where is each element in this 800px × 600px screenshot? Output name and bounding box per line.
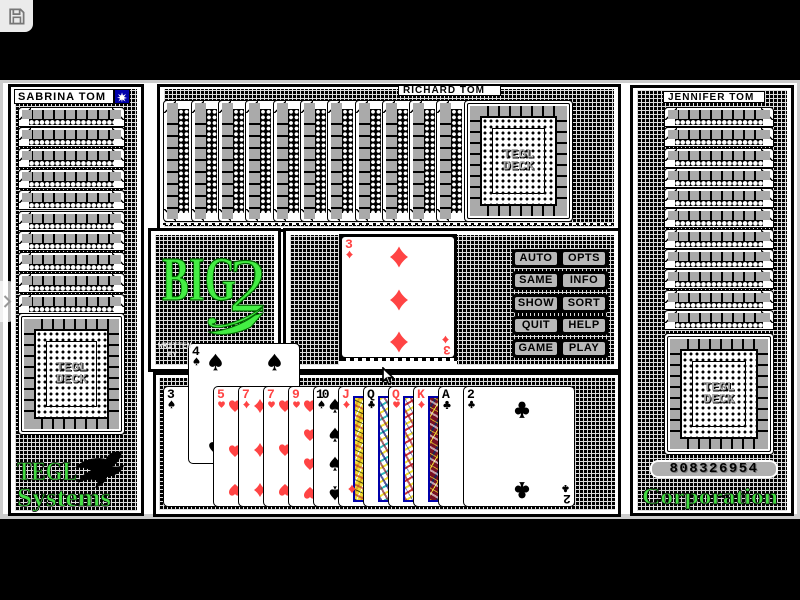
svg-text:BIG: BIG: [162, 246, 236, 314]
svg-text:Systems: Systems: [17, 483, 111, 512]
svg-text:TEGL: TEGL: [17, 457, 77, 486]
svg-text:Corporation: Corporation: [642, 484, 778, 509]
